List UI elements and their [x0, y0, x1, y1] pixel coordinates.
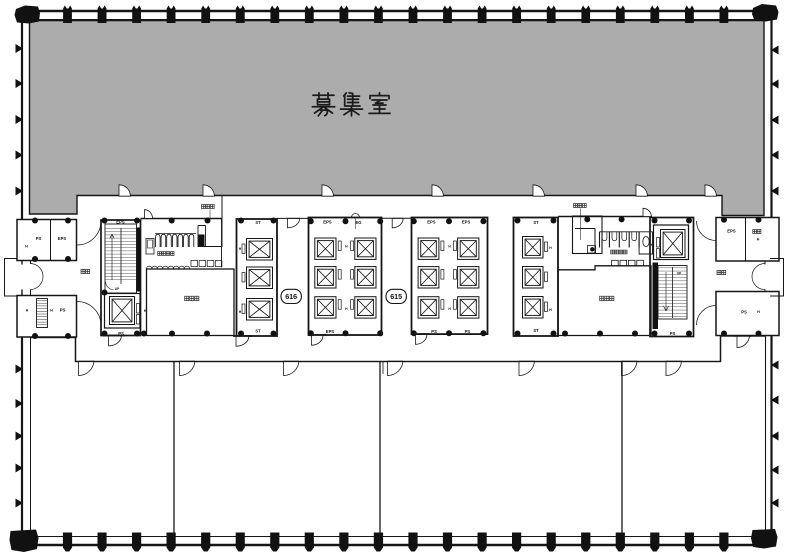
svg-text:ST: ST — [533, 220, 539, 225]
svg-text:H: H — [50, 309, 53, 313]
svg-text:616: 616 — [285, 292, 297, 301]
svg-text:H: H — [757, 238, 760, 242]
svg-text:PS: PS — [36, 236, 42, 241]
svg-text:EPS: EPS — [727, 229, 736, 234]
svg-text:H: H — [26, 309, 29, 313]
svg-text:PS: PS — [431, 329, 437, 334]
svg-text:ST: ST — [533, 328, 539, 333]
svg-text:PS: PS — [741, 310, 747, 315]
svg-text:ST: ST — [255, 220, 261, 225]
svg-text:EPS: EPS — [427, 220, 436, 225]
svg-text:ST: ST — [255, 328, 261, 333]
svg-text:PS: PS — [465, 329, 471, 334]
svg-text:EPS: EPS — [323, 220, 332, 225]
svg-text:EPS: EPS — [462, 220, 471, 225]
svg-text:PS: PS — [60, 308, 66, 313]
svg-text:H: H — [757, 310, 760, 314]
svg-text:EG: EG — [355, 220, 361, 225]
svg-text:H: H — [25, 245, 28, 249]
svg-text:615: 615 — [390, 292, 402, 301]
svg-text:EPS: EPS — [58, 236, 67, 241]
svg-text:EPS: EPS — [326, 329, 335, 334]
svg-text:H: H — [650, 243, 653, 247]
svg-text:PS: PS — [670, 331, 676, 336]
svg-text:EPS: EPS — [116, 219, 125, 224]
